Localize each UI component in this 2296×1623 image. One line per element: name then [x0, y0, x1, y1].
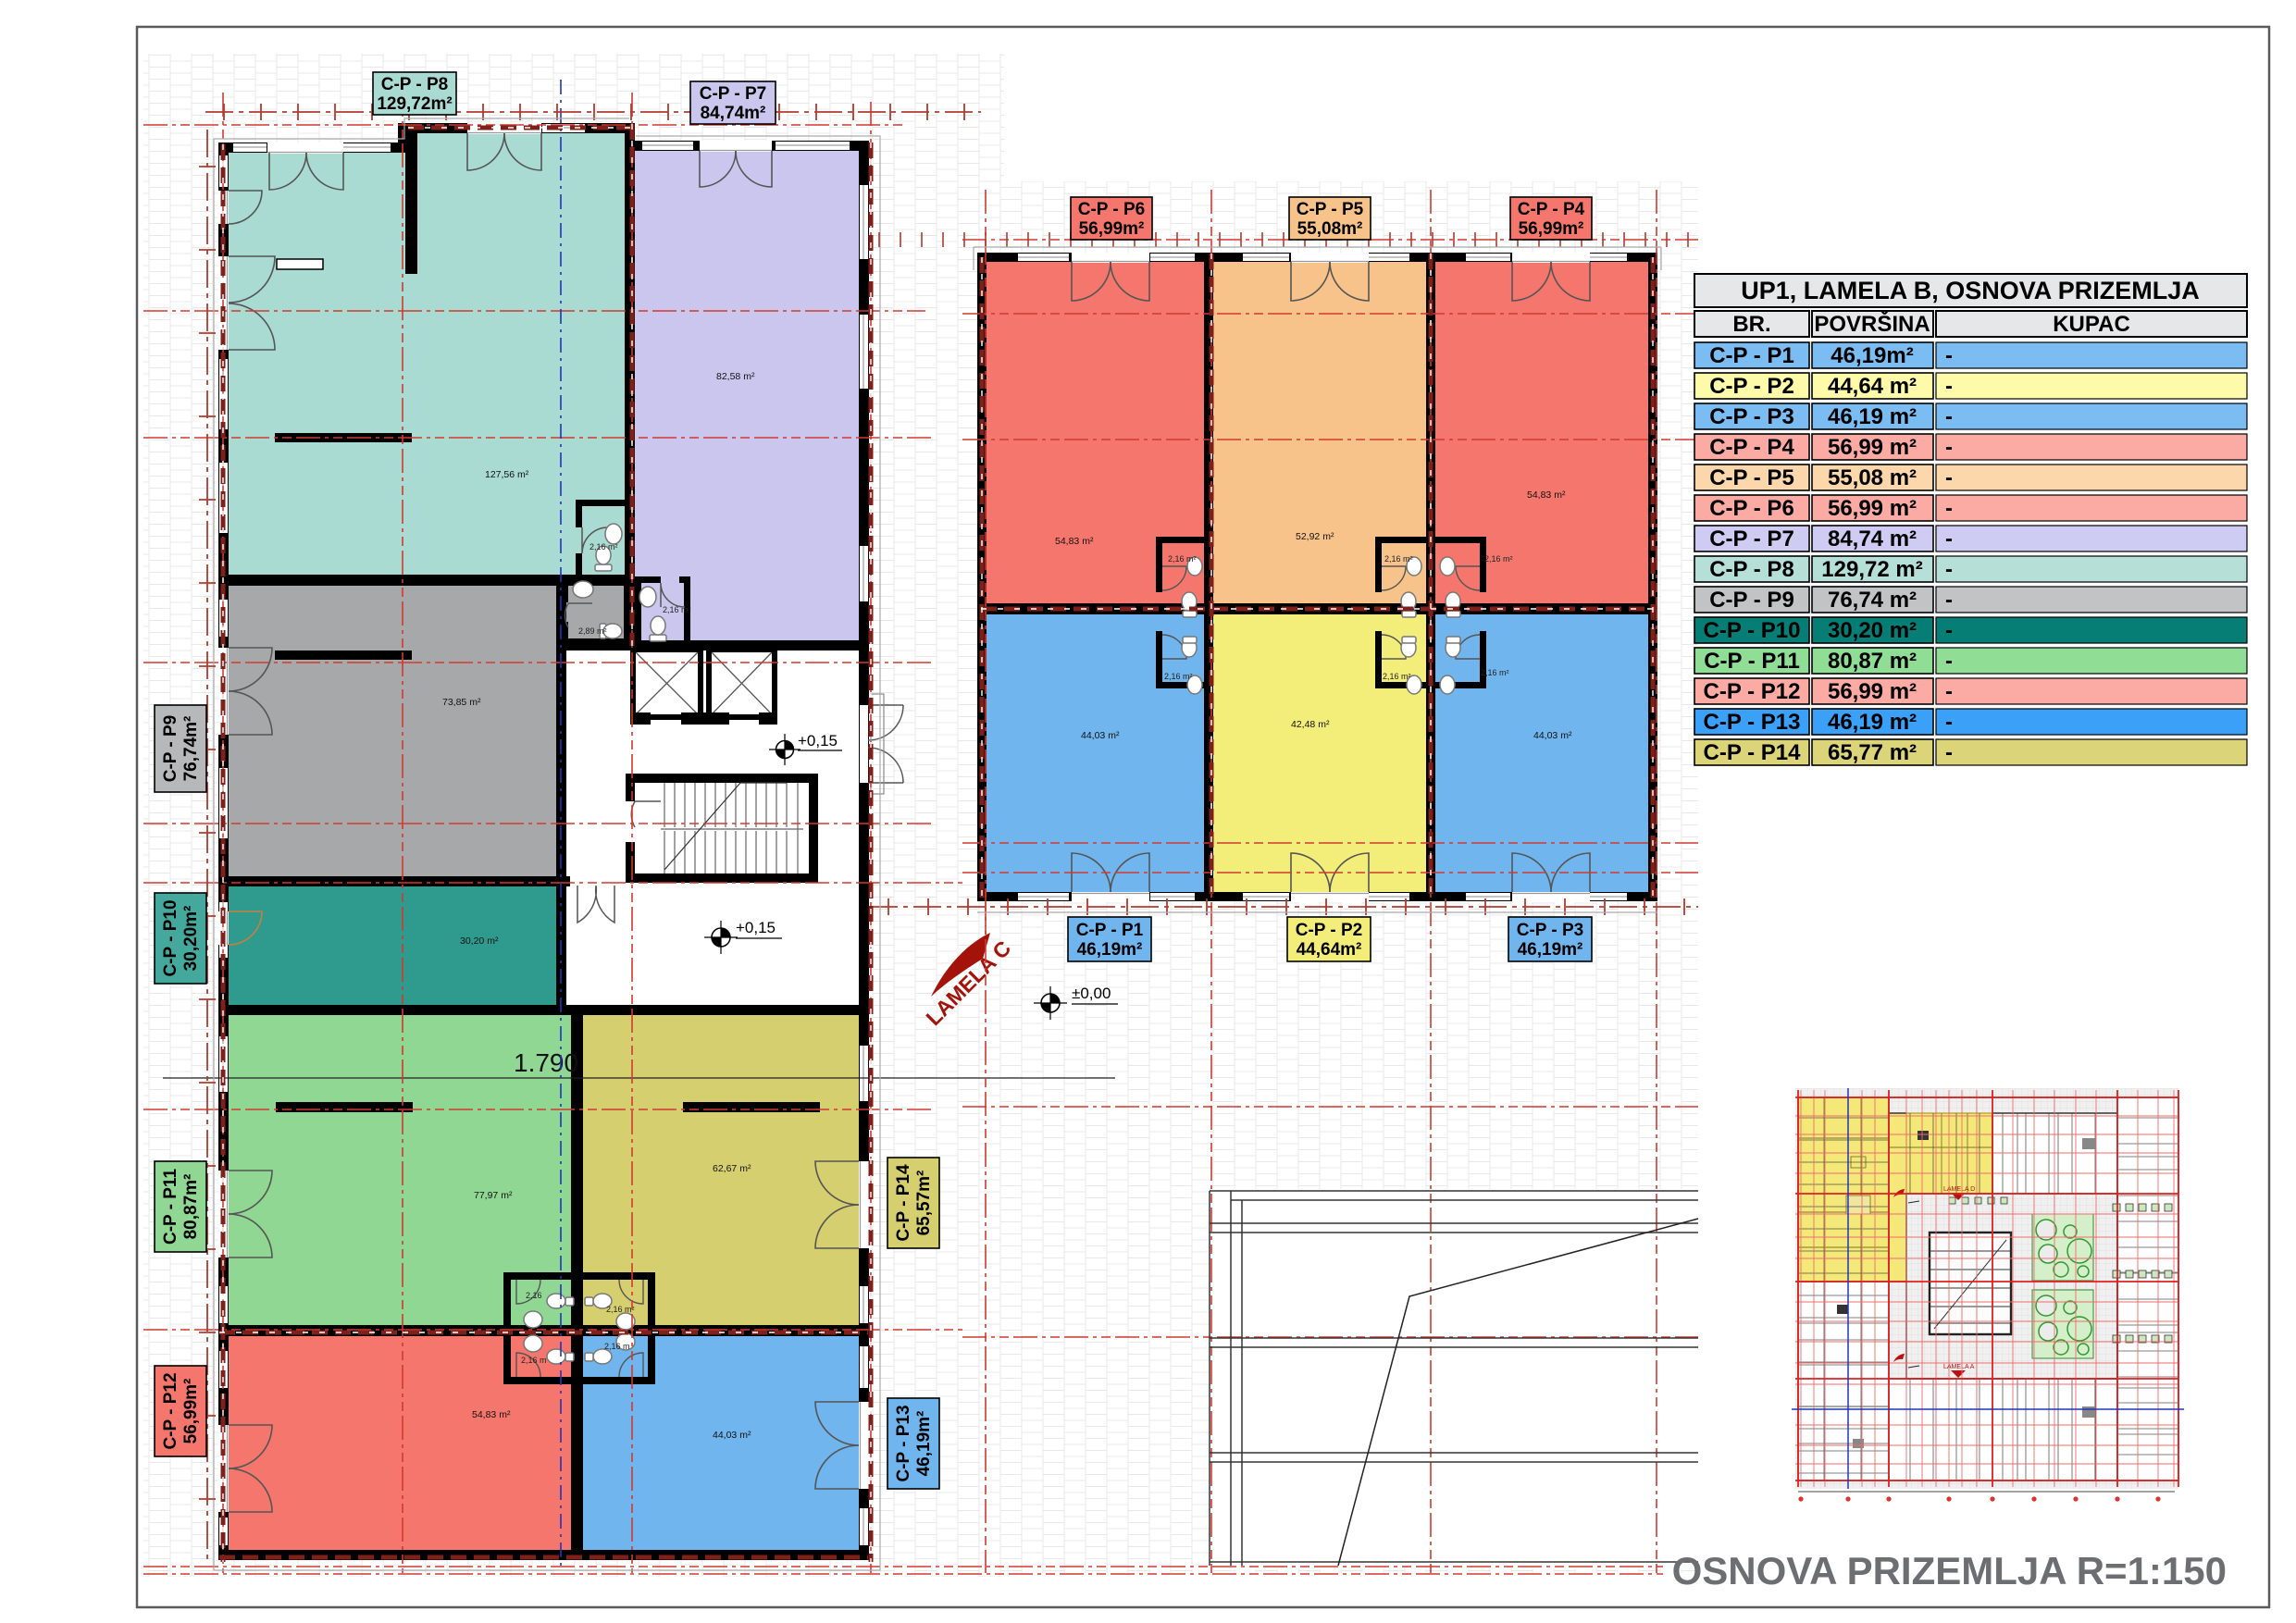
svg-text:73,85 m²: 73,85 m² [442, 697, 481, 708]
svg-text:C-P - P1: C-P - P1 [1709, 343, 1794, 368]
svg-text:82,58 m²: 82,58 m² [716, 371, 755, 382]
svg-text:C-P - P6: C-P - P6 [1709, 496, 1794, 521]
svg-text:C-P - P7: C-P - P7 [700, 84, 767, 104]
svg-text:65,77 m²: 65,77 m² [1828, 740, 1917, 765]
svg-text:2,16 m²: 2,16 m² [1168, 554, 1197, 564]
svg-text:C-P - P4: C-P - P4 [1709, 435, 1794, 460]
svg-text:C-P - P10: C-P - P10 [161, 899, 180, 976]
svg-text:55,08 m²: 55,08 m² [1828, 465, 1917, 490]
svg-text:-: - [1945, 374, 1953, 399]
svg-text:46,19m²: 46,19m² [1831, 343, 1913, 368]
svg-text:-: - [1945, 557, 1953, 582]
svg-text:C-P - P8: C-P - P8 [381, 75, 449, 94]
svg-text:C-P - P14: C-P - P14 [1704, 740, 1802, 765]
svg-text:-: - [1945, 679, 1953, 704]
svg-text:LAMELA D: LAMELA D [1943, 1186, 1975, 1193]
svg-text:C-P - P4: C-P - P4 [1518, 200, 1585, 219]
svg-text:54,83 m²: 54,83 m² [472, 1409, 511, 1420]
svg-text:30,20m²: 30,20m² [181, 906, 201, 972]
svg-text:C-P - P3: C-P - P3 [1709, 404, 1794, 429]
svg-text:2,16 m²: 2,16 m² [606, 1305, 635, 1314]
svg-text:±0,00: ±0,00 [1072, 985, 1111, 1002]
svg-text:80,87 m²: 80,87 m² [1828, 649, 1917, 674]
svg-text:2,16 m²: 2,16 m² [1384, 554, 1413, 564]
svg-text:2,16 m²: 2,16 m² [663, 605, 691, 614]
svg-text:C-P - P11: C-P - P11 [1704, 649, 1800, 674]
svg-text:C-P - P5: C-P - P5 [1709, 465, 1794, 490]
svg-text:46,19 m²: 46,19 m² [1828, 710, 1917, 735]
svg-text:C-P - P11: C-P - P11 [161, 1169, 180, 1245]
svg-text:2,16 m²: 2,16 m² [1484, 554, 1513, 564]
svg-text:C-P - P1: C-P - P1 [1076, 921, 1144, 940]
svg-text:30,20 m²: 30,20 m² [1828, 618, 1917, 643]
svg-text:C-P - P10: C-P - P10 [1704, 618, 1801, 643]
svg-text:-: - [1945, 527, 1953, 551]
svg-text:+0,15: +0,15 [736, 919, 776, 936]
svg-text:56,99m²: 56,99m² [181, 1379, 201, 1444]
svg-text:UP1, LAMELA B, OSNOVA PRIZEMLJ: UP1, LAMELA B, OSNOVA PRIZEMLJA [1741, 277, 2200, 304]
svg-text:-: - [1945, 465, 1953, 490]
svg-text:84,74 m²: 84,74 m² [1828, 527, 1917, 551]
svg-text:BR.: BR. [1732, 312, 1770, 337]
svg-text:C-P - P6: C-P - P6 [1078, 200, 1146, 219]
svg-text:C-P - P2: C-P - P2 [1709, 374, 1794, 399]
svg-text:44,03 m²: 44,03 m² [1533, 730, 1572, 741]
svg-text:C-P - P2: C-P - P2 [1296, 921, 1363, 940]
svg-text:46,19m²: 46,19m² [914, 1411, 934, 1477]
svg-text:55,08m²: 55,08m² [1297, 219, 1363, 239]
svg-text:44,64m²: 44,64m² [1297, 940, 1362, 960]
svg-text:-: - [1945, 740, 1953, 765]
svg-text:2,16 m²: 2,16 m² [1383, 672, 1411, 681]
svg-text:65,57m²: 65,57m² [914, 1171, 934, 1236]
svg-text:-: - [1945, 618, 1953, 643]
svg-text:56,99m²: 56,99m² [1519, 219, 1584, 239]
svg-text:-: - [1945, 496, 1953, 521]
svg-text:129,72 m²: 129,72 m² [1821, 557, 1922, 582]
svg-text:2,16 m²: 2,16 m² [1481, 668, 1509, 677]
svg-text:C-P - P12: C-P - P12 [161, 1372, 180, 1449]
svg-text:-: - [1945, 343, 1953, 368]
svg-text:1.790: 1.790 [514, 1048, 578, 1077]
svg-text:-: - [1945, 404, 1953, 429]
svg-text:30,20 m²: 30,20 m² [460, 935, 499, 947]
svg-text:-: - [1945, 710, 1953, 735]
svg-text:42,48 m²: 42,48 m² [1291, 719, 1330, 730]
svg-text:+0,15: +0,15 [798, 732, 838, 750]
svg-text:46,19m²: 46,19m² [1077, 940, 1143, 960]
svg-text:C-P - P3: C-P - P3 [1517, 921, 1584, 940]
svg-text:52,92 m²: 52,92 m² [1296, 531, 1334, 542]
svg-text:44,64 m²: 44,64 m² [1828, 374, 1917, 399]
svg-text:54,83 m²: 54,83 m² [1055, 536, 1094, 547]
svg-text:C-P - P13: C-P - P13 [1704, 710, 1801, 735]
svg-text:56,99 m²: 56,99 m² [1828, 679, 1917, 704]
svg-text:C-P - P8: C-P - P8 [1709, 557, 1794, 582]
svg-text:44,03 m²: 44,03 m² [713, 1430, 751, 1441]
svg-text:C-P - P7: C-P - P7 [1709, 527, 1794, 551]
svg-text:127,56 m²: 127,56 m² [485, 469, 529, 480]
svg-text:-: - [1945, 435, 1953, 460]
svg-text:2,16 m²: 2,16 m² [590, 542, 618, 551]
svg-text:C-P - P9: C-P - P9 [1709, 588, 1794, 613]
svg-text:76,74 m²: 76,74 m² [1828, 588, 1917, 613]
svg-text:POVRŠINA: POVRŠINA [1814, 311, 1930, 337]
svg-text:56,99 m²: 56,99 m² [1828, 496, 1917, 521]
svg-text:62,67 m²: 62,67 m² [713, 1163, 751, 1174]
svg-text:54,83 m²: 54,83 m² [1527, 489, 1566, 501]
svg-text:80,87m²: 80,87m² [181, 1174, 201, 1240]
svg-text:76,74m²: 76,74m² [181, 716, 201, 782]
svg-text:-: - [1945, 649, 1953, 674]
svg-text:2,16 m²: 2,16 m² [1164, 672, 1193, 681]
svg-text:C-P - P14: C-P - P14 [894, 1164, 913, 1242]
svg-text:2,16: 2,16 [526, 1291, 542, 1300]
svg-text:C-P - P13: C-P - P13 [894, 1405, 913, 1481]
svg-text:2,16 m: 2,16 m [521, 1356, 547, 1365]
svg-text:129,72m²: 129,72m² [377, 94, 452, 114]
svg-text:44,03 m²: 44,03 m² [1081, 730, 1120, 741]
svg-text:2,16 m: 2,16 m [604, 1342, 630, 1351]
svg-text:46,19m²: 46,19m² [1518, 940, 1583, 960]
svg-text:C-P - P12: C-P - P12 [1704, 679, 1801, 704]
svg-text:84,74m²: 84,74m² [701, 104, 766, 123]
svg-text:LAMELA A: LAMELA A [1943, 1364, 1975, 1370]
svg-text:46,19 m²: 46,19 m² [1828, 404, 1917, 429]
svg-text:C-P - P5: C-P - P5 [1297, 200, 1364, 219]
svg-text:C-P - P9: C-P - P9 [161, 715, 180, 783]
svg-text:-: - [1945, 588, 1953, 613]
svg-text:56,99m²: 56,99m² [1079, 219, 1145, 239]
svg-text:OSNOVA PRIZEMLJA R=1:150: OSNOVA PRIZEMLJA R=1:150 [1672, 1549, 2227, 1592]
svg-text:56,99 m²: 56,99 m² [1828, 435, 1917, 460]
svg-text:77,97 m²: 77,97 m² [474, 1190, 513, 1201]
svg-text:KUPAC: KUPAC [2053, 312, 2130, 337]
svg-text:2,89 m²: 2,89 m² [578, 626, 607, 636]
